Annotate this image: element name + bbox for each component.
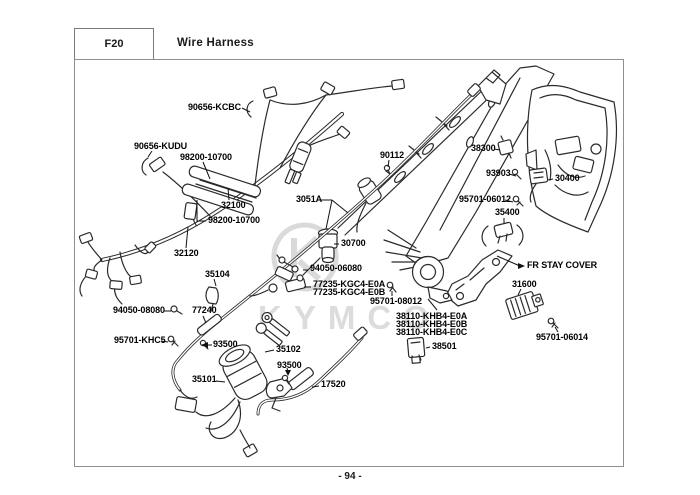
part-label-35101: 35101 [192, 375, 217, 384]
part-label-38300: 38300 [471, 144, 496, 153]
part-label-98200-10700-b: 98200-10700 [208, 216, 260, 225]
part-label-3051a: 3051A [296, 195, 322, 204]
part-label-98200-10700-a: 98200-10700 [180, 153, 232, 162]
part-label-38501: 38501 [432, 342, 457, 351]
part-label-93500-a: 93500 [213, 340, 238, 349]
part-label-32120: 32120 [174, 249, 199, 258]
part-label-93903: 93903 [486, 169, 511, 178]
part-label-32100: 32100 [221, 201, 246, 210]
section-code: F20 [105, 38, 124, 50]
part-label-35400: 35400 [495, 208, 520, 217]
part-label-95701-khc5: 95701-KHC5 [114, 336, 166, 345]
part-label-fr-stay-cover: FR STAY COVER [527, 261, 597, 270]
page-number: - 94 - [0, 471, 700, 482]
part-label-90656-kcbc: 90656-KCBC [188, 103, 241, 112]
part-label-94050-08080: 94050-08080 [113, 306, 165, 315]
page-title: Wire Harness [177, 37, 254, 49]
part-label-30400: 30400 [555, 174, 580, 183]
part-label-31600: 31600 [512, 280, 537, 289]
part-label-95701-06014: 95701-06014 [536, 333, 588, 342]
part-label-93500-b: 93500 [277, 361, 302, 370]
part-label-90112: 90112 [380, 151, 404, 160]
part-label-95701-06012: 95701-06012 [459, 195, 511, 204]
part-label-90656-kudu: 90656-KUDU [134, 142, 187, 151]
catalog-page: KYMCO [0, 0, 700, 495]
section-code-box: F20 [74, 28, 154, 60]
part-label-95701-08012: 95701-08012 [370, 297, 422, 306]
part-label-17520: 17520 [321, 380, 346, 389]
part-label-35102: 35102 [276, 345, 301, 354]
part-label-35104: 35104 [205, 270, 230, 279]
part-label-30700: 30700 [341, 239, 366, 248]
part-label-38110-khb4-e0c: 38110-KHB4-E0C [396, 328, 467, 337]
part-label-94050-06080: 94050-06080 [310, 264, 362, 273]
part-label-77240: 77240 [192, 306, 217, 315]
